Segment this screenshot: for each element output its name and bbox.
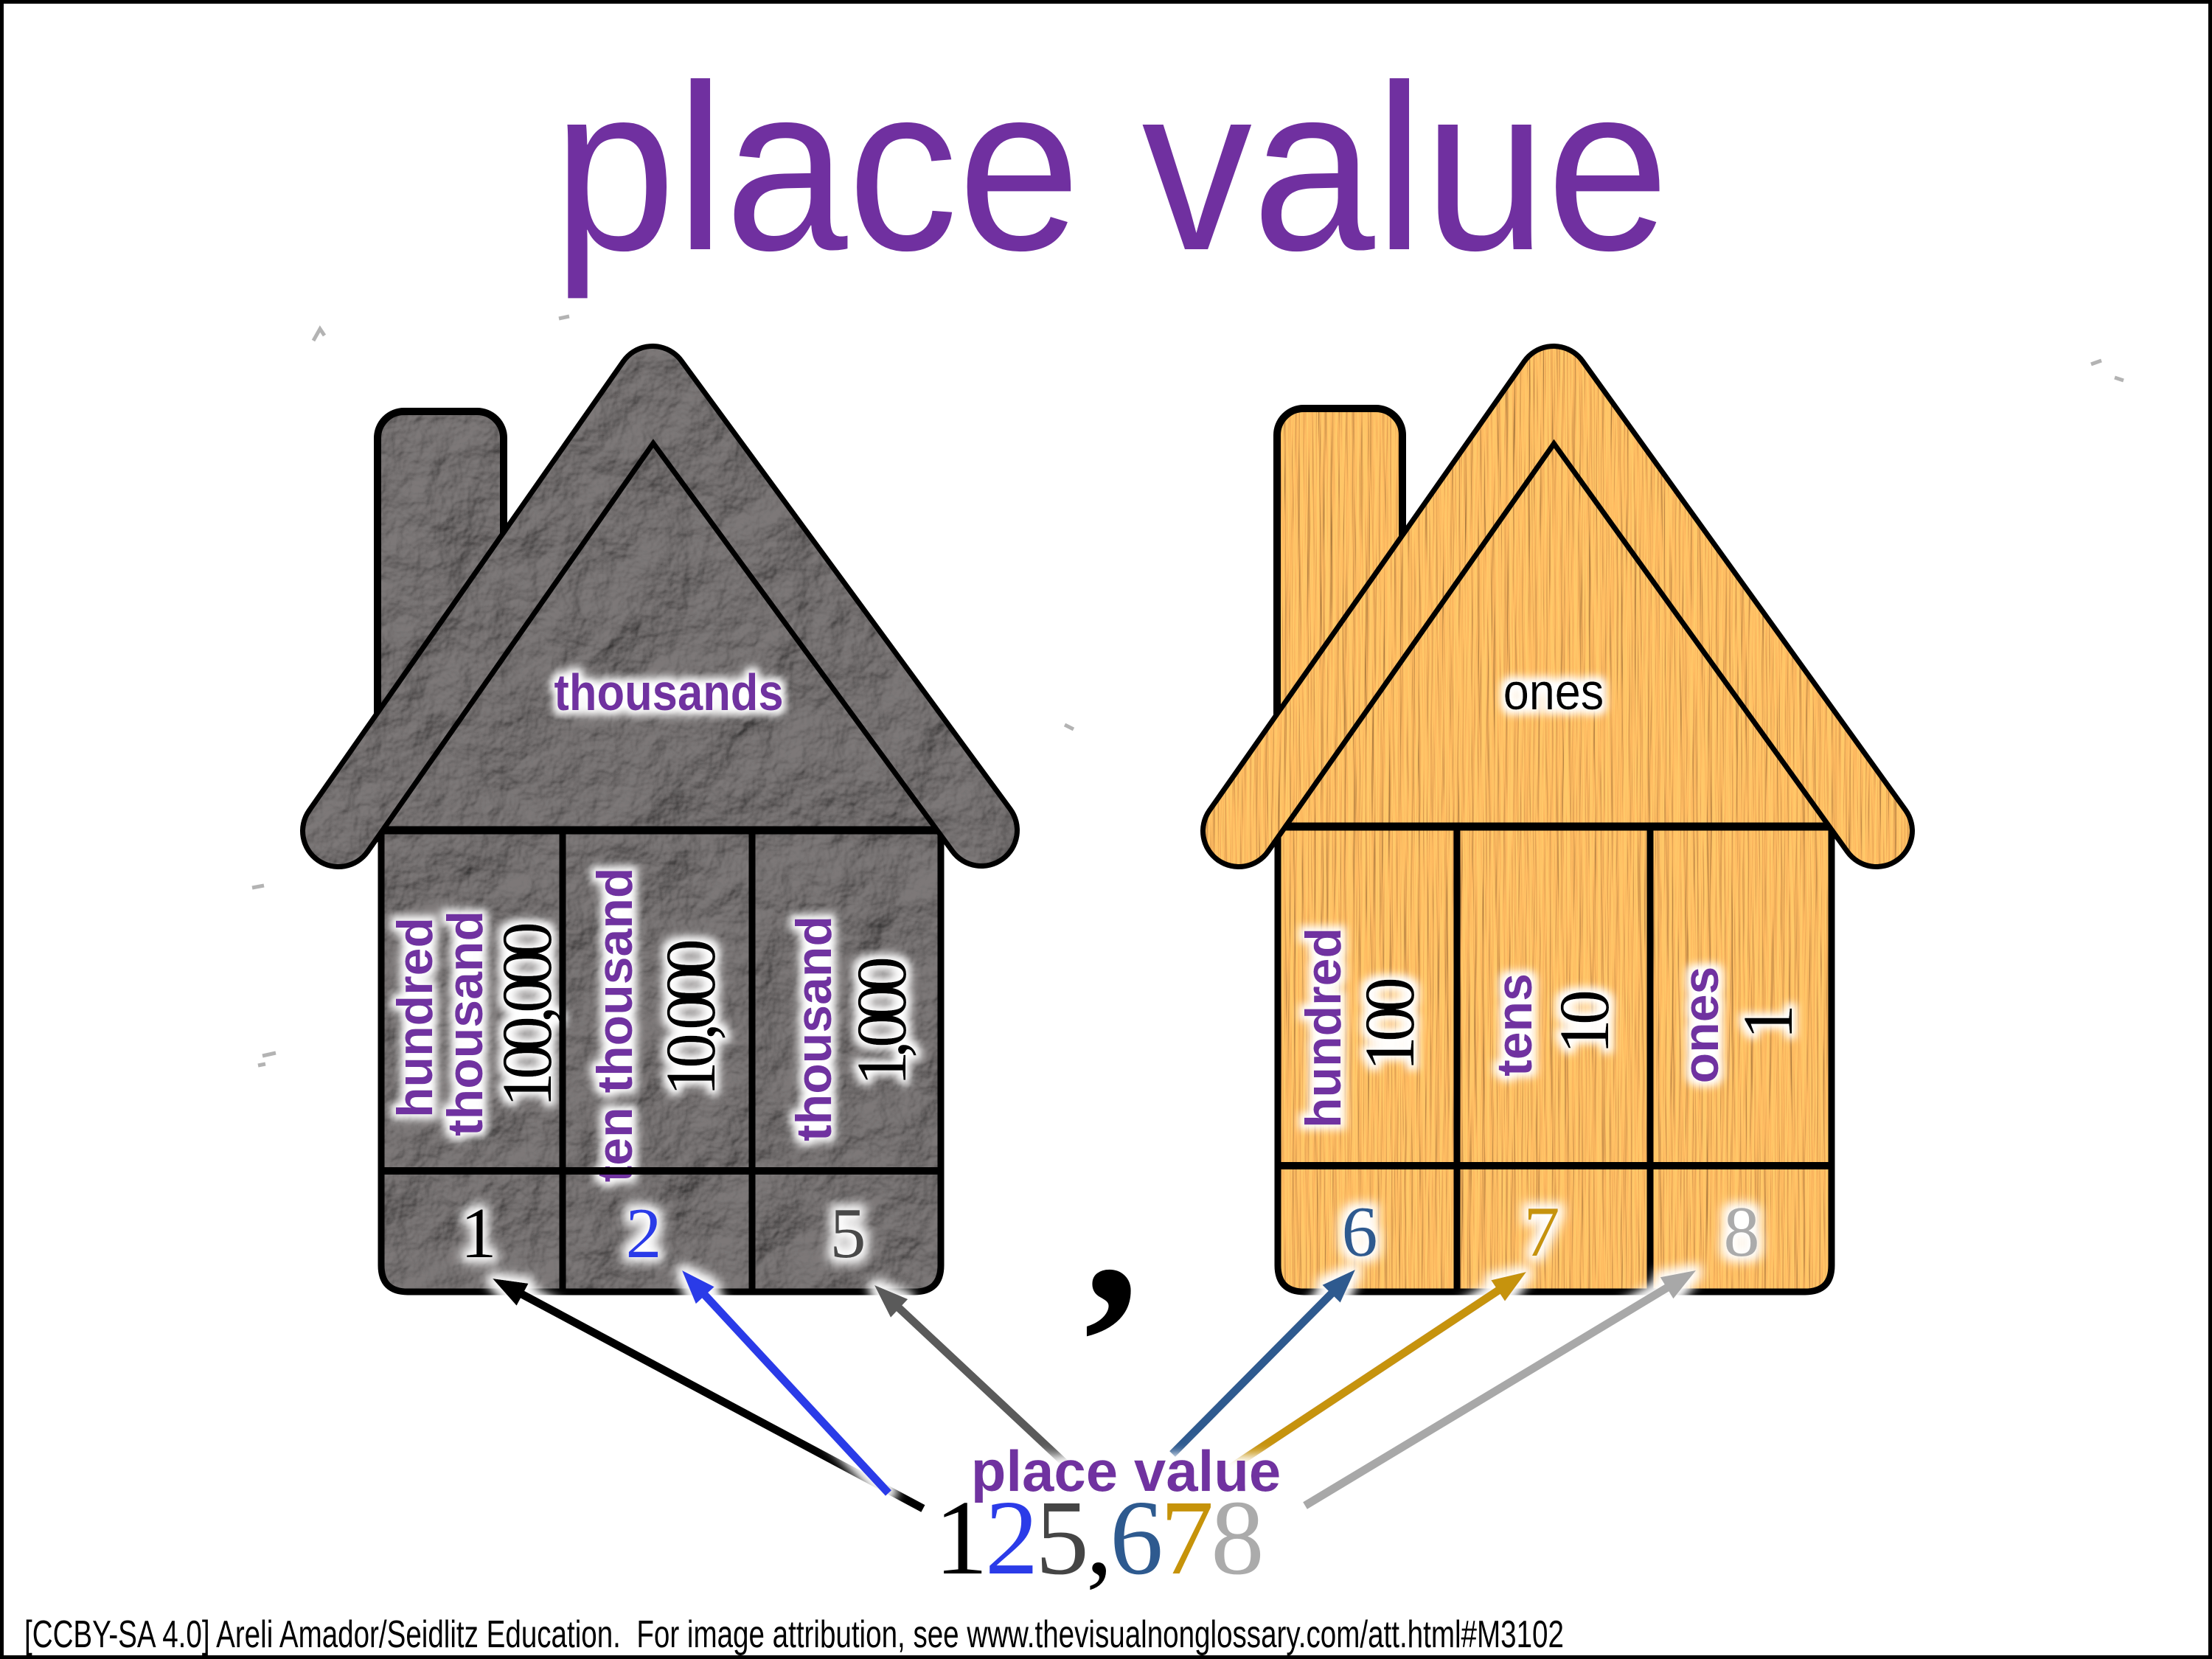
svg-text:thousands: thousands [554,663,783,721]
svg-text:ones: ones [1503,664,1604,721]
svg-text:100: 100 [1350,979,1429,1071]
svg-text:hundred: hundred [387,917,443,1118]
svg-text:1: 1 [461,1194,497,1273]
svg-text:8: 8 [1724,1192,1760,1272]
svg-text:thousand: thousand [437,911,493,1136]
svg-text:5: 5 [830,1194,866,1273]
svg-text:2: 2 [626,1194,662,1273]
svg-text:1,000: 1,000 [842,959,921,1086]
svg-text:ten thousand: ten thousand [587,868,643,1183]
svg-text:1: 1 [1728,1008,1807,1040]
svg-text:7: 7 [1524,1192,1560,1272]
svg-text:ones: ones [1673,967,1729,1084]
svg-text:125,678: 125,678 [934,1479,1261,1597]
svg-text:100,000: 100,000 [487,924,566,1107]
svg-text:place value: place value [553,36,1669,301]
svg-text:[CCBY-SA 4.0] Areli Amador/Sei: [CCBY-SA 4.0] Areli Amador/Seidlitz Educ… [24,1613,1564,1655]
svg-text:,: , [1084,1105,1139,1350]
svg-text:tens: tens [1486,973,1543,1077]
svg-text:hundred: hundred [1295,928,1352,1128]
svg-text:10,000: 10,000 [651,941,730,1096]
svg-text:6: 6 [1342,1192,1378,1272]
svg-text:thousand: thousand [786,916,842,1141]
svg-text:10: 10 [1545,992,1624,1054]
